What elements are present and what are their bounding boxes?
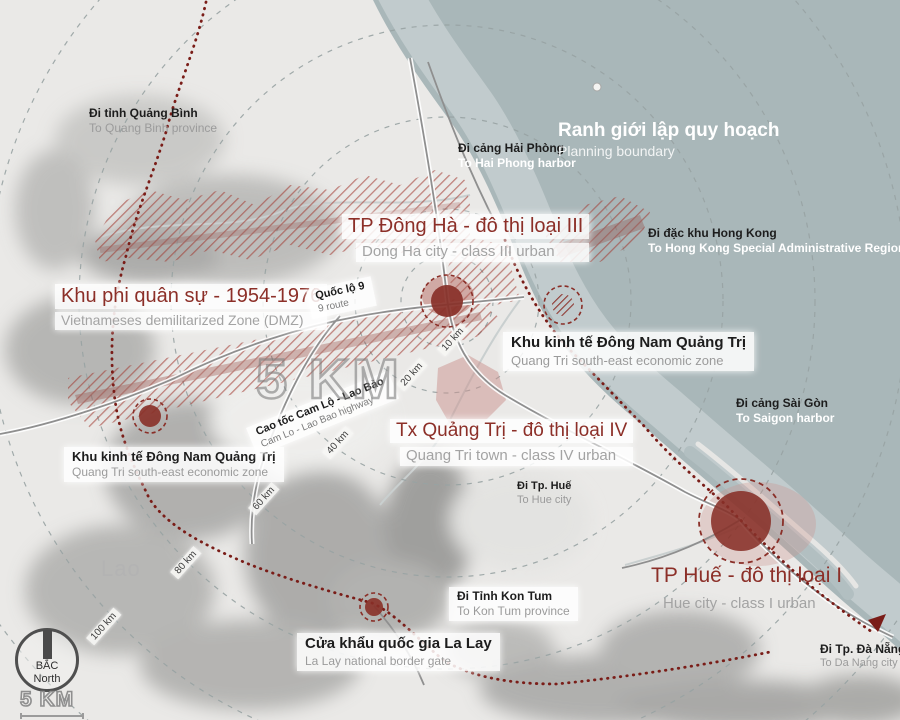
label-econ-zone-east: Khu kinh tế Đông Nam Quảng Trị Quang Tri… xyxy=(503,332,754,371)
north-circle-icon: BẮC North xyxy=(15,628,79,692)
con-co-island xyxy=(593,83,601,91)
label-quang-binh-vi: Đi tỉnh Quảng Bình xyxy=(89,106,217,121)
label-econ-zone-west-en: Quang Tri south-east economic zone xyxy=(72,465,276,480)
label-tx-quang-tri-vi: Tx Quảng Trị - đô thị loại IV xyxy=(390,419,633,443)
label-hue-en: Hue city - class I urban xyxy=(663,595,842,614)
label-dmz-vi: Khu phi quân sự - 1954-1976 xyxy=(55,284,327,309)
label-kon-tum-en: To Kon Tum province xyxy=(457,604,570,619)
label-planning-boundary: Ranh giới lập quy hoạch Planning boundar… xyxy=(558,119,779,160)
label-dmz-en: Vietnameses demilitarized Zone (DMZ) xyxy=(55,312,327,330)
label-hue-direction-vi: Đi Tp. Huế xyxy=(517,480,571,494)
city-marker-hue xyxy=(711,491,771,551)
label-kon-tum: Đi Tỉnh Kon Tum To Kon Tum province xyxy=(449,587,578,621)
scale-bar: 5 KM xyxy=(20,688,90,719)
label-planning-boundary-vi: Ranh giới lập quy hoạch xyxy=(558,119,779,143)
label-dmz: Khu phi quân sự - 1954-1976 Vietnameses … xyxy=(55,284,327,330)
label-tx-quang-tri: Tx Quảng Trị - đô thị loại IV Quang Tri … xyxy=(390,419,633,466)
scale-watermark: 5 KM xyxy=(256,346,402,411)
north-label-vi: BẮC xyxy=(18,660,76,672)
label-econ-zone-east-vi: Khu kinh tế Đông Nam Quảng Trị xyxy=(511,334,746,353)
scale-bar-label: 5 KM xyxy=(20,688,90,712)
city-marker-dong-ha xyxy=(431,285,463,317)
marker-la-lay xyxy=(365,598,383,616)
label-la-lay-vi: Cửa khẩu quốc gia La Lay xyxy=(305,635,492,654)
label-da-nang: Đi Tp. Đà Nẵng To Da Nang city xyxy=(820,642,900,671)
label-hue-vi: TP Huế - đô thị loại I xyxy=(651,563,842,589)
label-laos: Lao xyxy=(101,556,141,582)
label-saigon: Đi cảng Sài Gòn To Saigon harbor xyxy=(736,396,834,426)
north-arrow-icon xyxy=(43,630,52,659)
label-hong-kong-vi: Đi đặc khu Hong Kong xyxy=(648,226,900,241)
planning-map: Đi tỉnh Quảng Bình To Quang Binh provinc… xyxy=(0,0,900,720)
label-dong-ha-en: Dong Ha city - class III urban xyxy=(356,243,589,262)
label-hong-kong-en: To Hong Kong Special Administrative Regi… xyxy=(648,241,900,256)
label-quang-binh: Đi tỉnh Quảng Bình To Quang Binh provinc… xyxy=(89,106,217,136)
label-econ-zone-west-vi: Khu kinh tế Đông Nam Quảng Trị xyxy=(72,449,276,465)
label-econ-zone-east-en: Quang Tri south-east economic zone xyxy=(511,353,746,369)
marker-econ-zone-east xyxy=(552,294,574,316)
label-kon-tum-vi: Đi Tỉnh Kon Tum xyxy=(457,589,570,604)
label-quang-binh-en: To Quang Binh province xyxy=(89,121,217,136)
label-dong-ha-vi: TP Đông Hà - đô thị loại III xyxy=(342,214,589,239)
label-hue-direction-en: To Hue city xyxy=(517,494,571,508)
label-econ-zone-west: Khu kinh tế Đông Nam Quảng Trị Quang Tri… xyxy=(64,447,284,482)
label-da-nang-en: To Da Nang city xyxy=(820,657,900,671)
north-indicator: BẮC North xyxy=(12,628,82,692)
label-tx-quang-tri-en: Quang Tri town - class IV urban xyxy=(400,447,633,466)
label-saigon-vi: Đi cảng Sài Gòn xyxy=(736,396,834,411)
label-la-lay: Cửa khẩu quốc gia La Lay La Lay national… xyxy=(297,633,500,671)
label-la-lay-en: La Lay national border gate xyxy=(305,654,492,669)
label-hue-direction: Đi Tp. Huế To Hue city xyxy=(517,480,571,508)
marker-econ-zone-west xyxy=(139,405,161,427)
label-hue: TP Huế - đô thị loại I Hue city - class … xyxy=(651,563,842,614)
label-saigon-en: To Saigon harbor xyxy=(736,411,834,426)
label-planning-boundary-en: Planning boundary xyxy=(558,143,779,161)
label-dong-ha: TP Đông Hà - đô thị loại III Dong Ha cit… xyxy=(342,214,589,262)
scale-bar-line xyxy=(20,713,84,719)
label-hong-kong: Đi đặc khu Hong Kong To Hong Kong Specia… xyxy=(648,226,900,256)
label-da-nang-vi: Đi Tp. Đà Nẵng xyxy=(820,642,900,657)
north-label-en: North xyxy=(18,673,76,685)
